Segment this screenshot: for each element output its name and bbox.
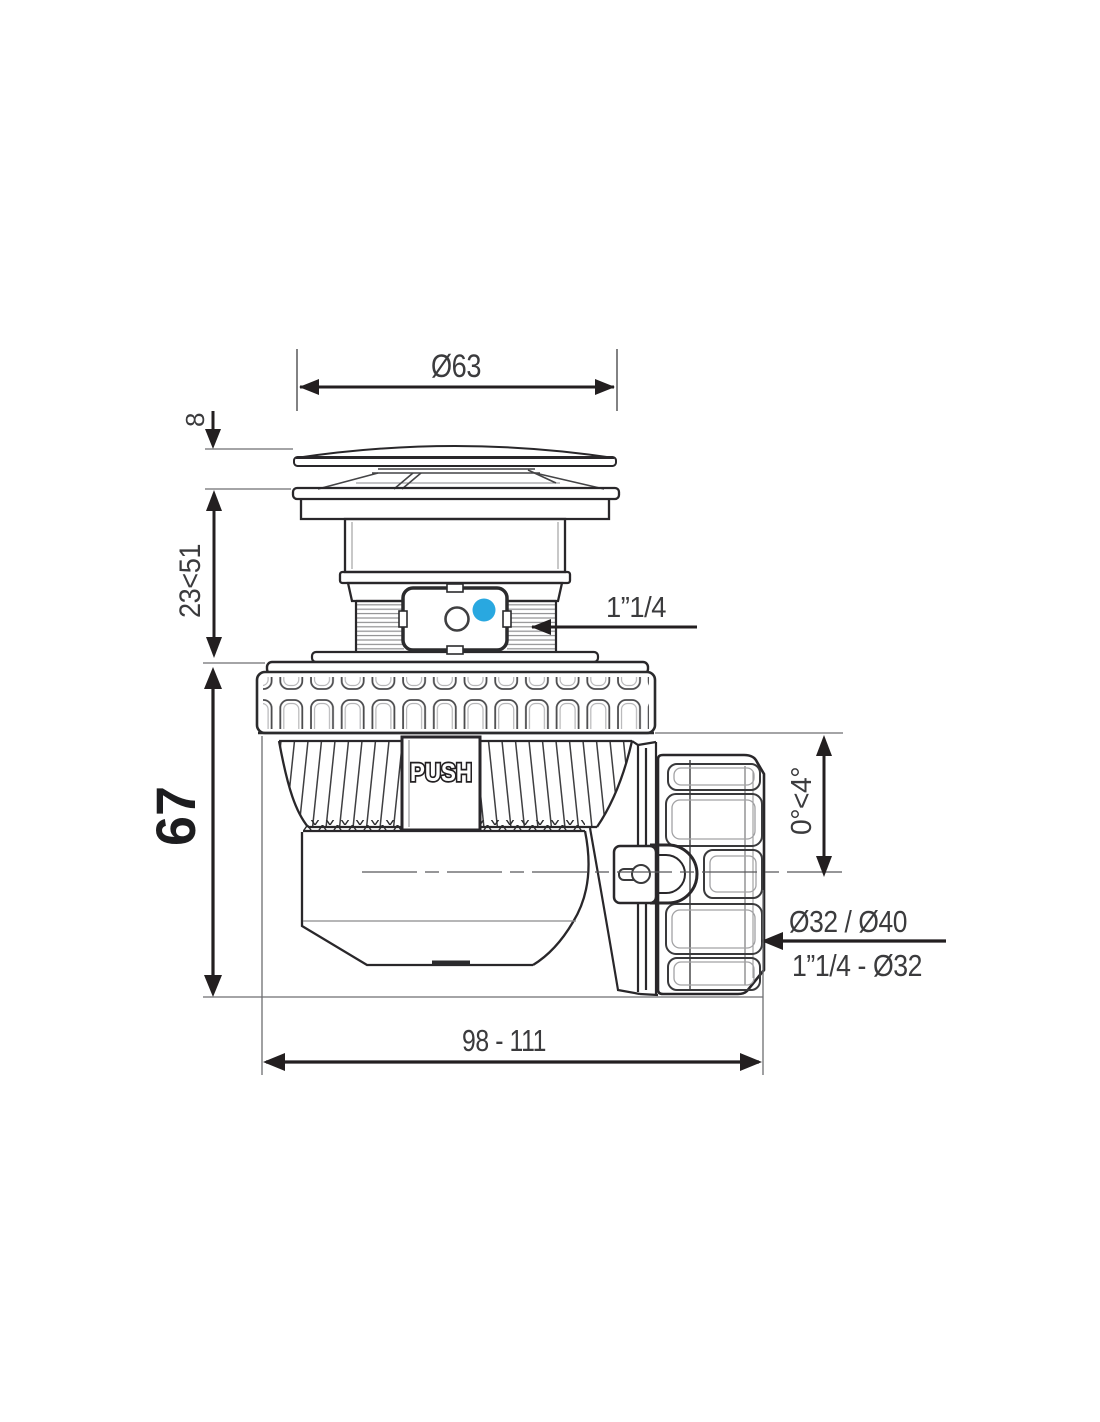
push-button: PUSH — [402, 737, 480, 830]
inlet-thread-label: 1”1/4 — [606, 592, 666, 624]
overall-length-label: 98 - 111 — [462, 1023, 546, 1058]
cap-height-label: 8 — [180, 413, 210, 427]
keyhole-tab — [614, 846, 656, 903]
drain-trap-technical-drawing: PUSH Ø63 8 23<51 67 1”1/4 0°<4° — [0, 0, 1100, 1422]
adjust-range-label: 23<51 — [174, 544, 207, 618]
body-height-label: 67 — [144, 786, 207, 846]
technical-drawing-page: PUSH Ø63 8 23<51 67 1”1/4 0°<4° — [0, 0, 1100, 1422]
push-button-label: PUSH — [410, 759, 472, 787]
outlet-angle-label: 0°<4° — [786, 767, 818, 835]
outlet-sizes-bottom-label: 1”1/4 - Ø32 — [792, 948, 922, 983]
blue-indicator-dot — [473, 599, 496, 622]
knurled-ring-nut — [257, 672, 655, 733]
outlet-sizes-top-label: Ø32 / Ø40 — [789, 904, 907, 939]
indicator-tag — [399, 584, 511, 654]
white-indicator-dot — [446, 608, 469, 631]
cap-diameter-label: Ø63 — [431, 348, 481, 384]
